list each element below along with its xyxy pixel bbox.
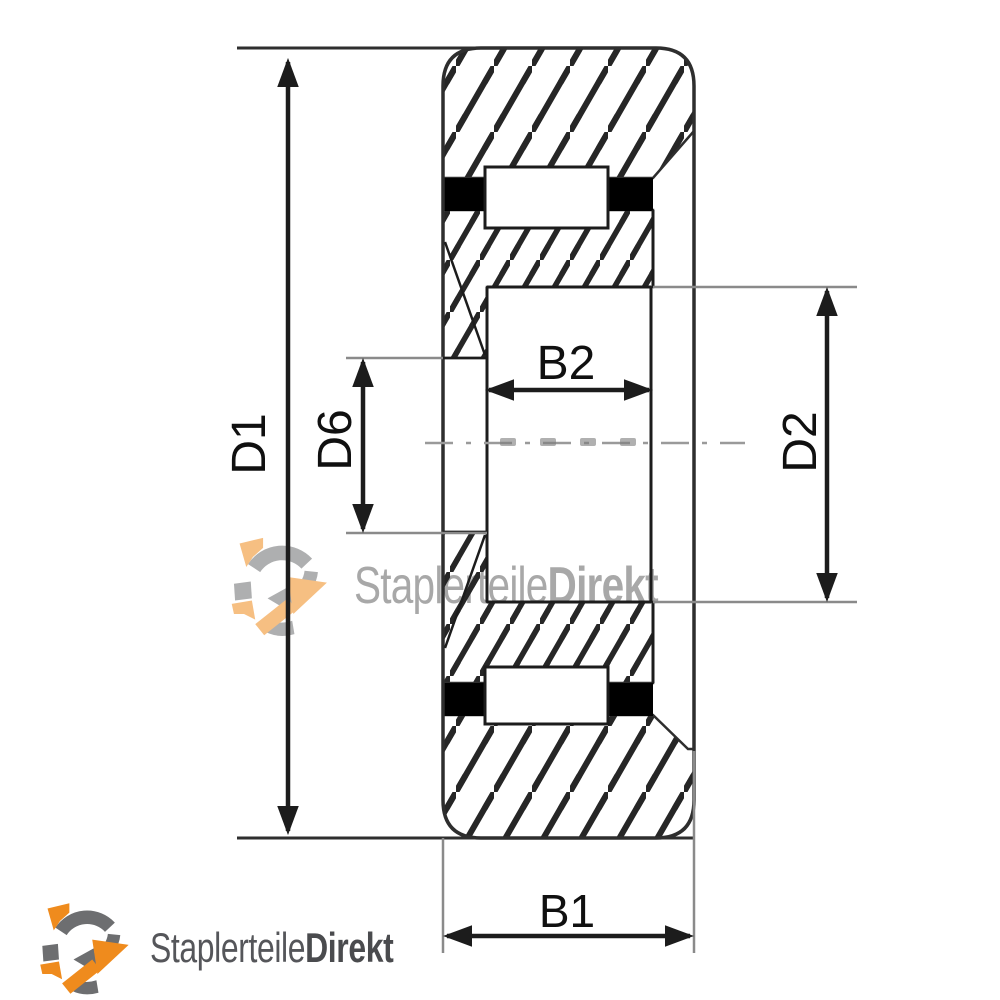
tyre-section-top	[443, 48, 694, 178]
tyre-section-bottom	[443, 715, 694, 838]
hub-section-top	[443, 210, 653, 358]
dim-label-d1: D1	[226, 413, 274, 474]
wheel-cross-section-drawing	[0, 0, 1000, 1000]
dim-label-b2: B2	[537, 340, 596, 388]
brand-logo: StaplerteileDirekt	[30, 896, 470, 1000]
brand-logo-icon	[30, 896, 142, 1000]
dim-label-d6: D6	[312, 409, 360, 470]
bearing-pocket-bottom	[485, 667, 608, 724]
centerline	[425, 438, 745, 446]
dim-label-b1: B1	[539, 888, 595, 934]
brand-name-regular: Staplerteile	[150, 924, 305, 971]
bearing-pocket-top	[485, 167, 608, 228]
brand-logo-text: StaplerteileDirekt	[150, 924, 393, 972]
hub-section-bottom	[443, 532, 653, 683]
dim-label-d2: D2	[777, 411, 825, 472]
brand-name-bold: Direkt	[305, 924, 393, 971]
page: StaplerteileDirekt	[0, 0, 1000, 1000]
